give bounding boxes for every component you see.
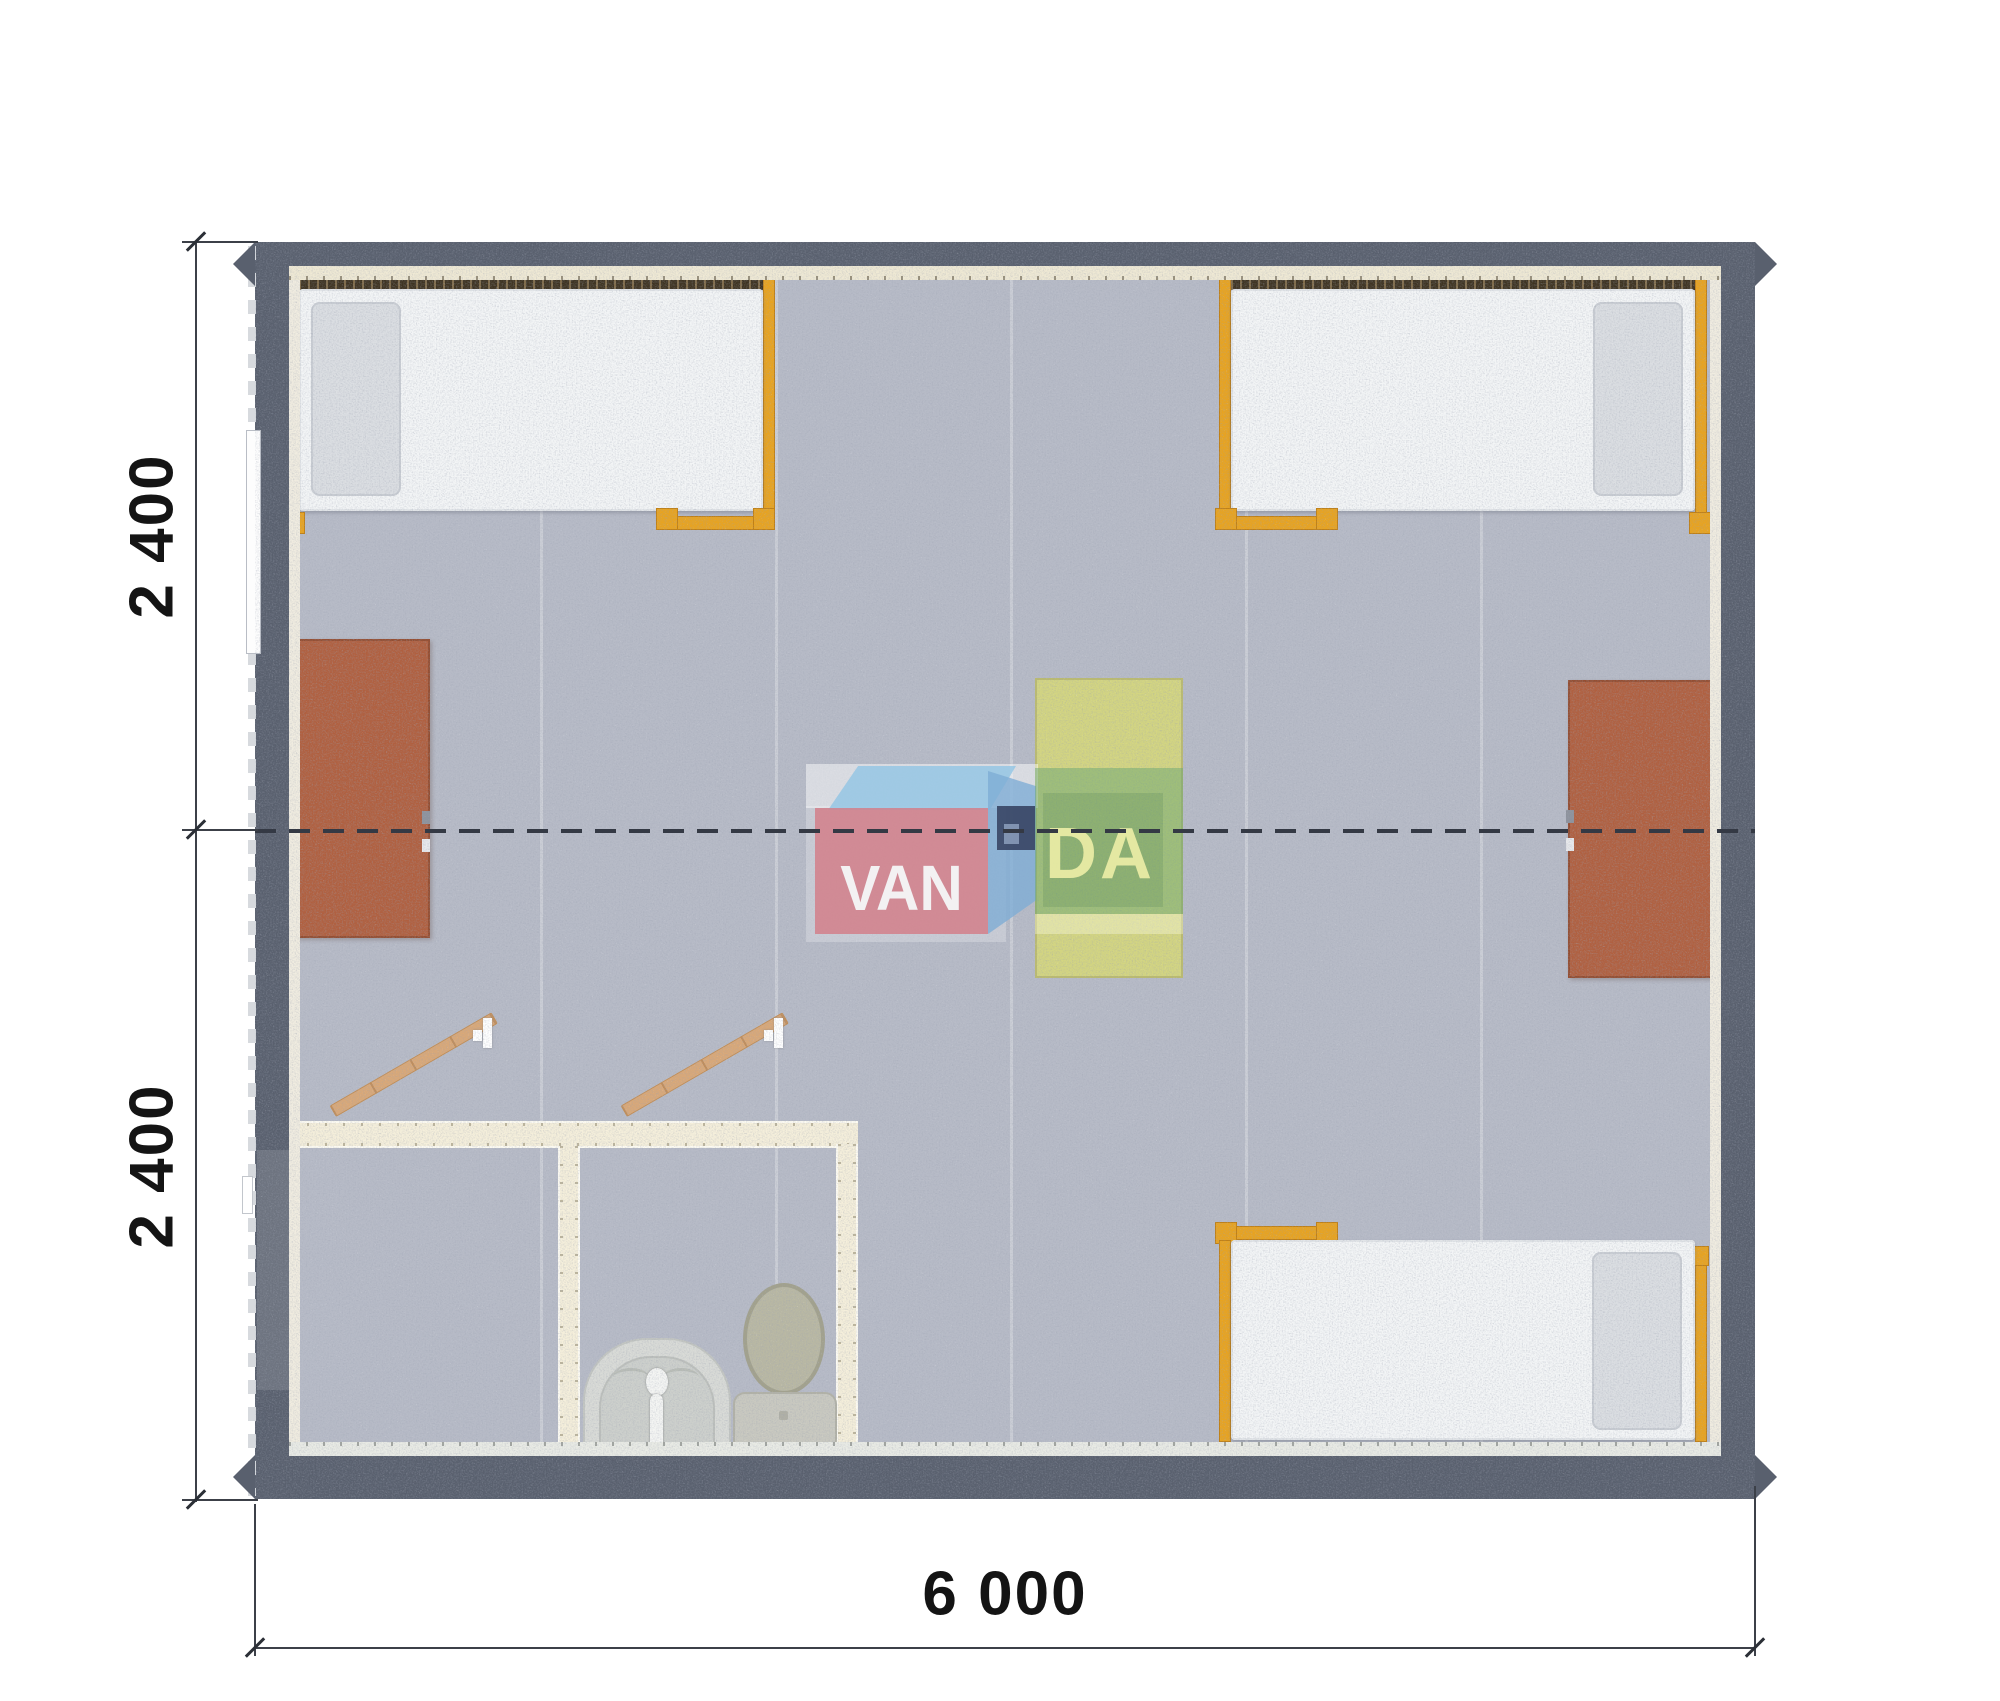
extension-line bbox=[1754, 1486, 1756, 1656]
dimension-label-bottom: 6 000 bbox=[922, 1559, 1087, 1630]
corner-arrow-bottom-left bbox=[233, 1455, 255, 1499]
dimension-label-left-top: 2 400 bbox=[117, 453, 188, 618]
corner-arrow-top-left bbox=[233, 242, 255, 286]
entrance-door-handle bbox=[242, 1176, 253, 1214]
logo-navy-inner bbox=[1004, 824, 1019, 844]
watermark-text-van: VAN bbox=[820, 848, 983, 928]
dimension-line-left bbox=[195, 242, 197, 1502]
corner-arrow-bottom-right bbox=[1755, 1455, 1777, 1499]
floor-plan-canvas: VAN DA 2 400 2 400 6 000 bbox=[0, 0, 2000, 1701]
logo-cube-bottom-glint bbox=[1035, 914, 1183, 934]
extension-line bbox=[254, 1504, 256, 1656]
building: VAN DA bbox=[0, 0, 2000, 1701]
module-split-dashed-line bbox=[255, 829, 1755, 833]
dimension-label-left-bottom: 2 400 bbox=[117, 1083, 188, 1248]
logo-cube-top-face bbox=[828, 766, 1016, 810]
watermark-text-da: DA bbox=[1035, 806, 1165, 902]
dimension-line-bottom bbox=[255, 1647, 1755, 1649]
corner-arrow-top-right bbox=[1755, 242, 1777, 286]
